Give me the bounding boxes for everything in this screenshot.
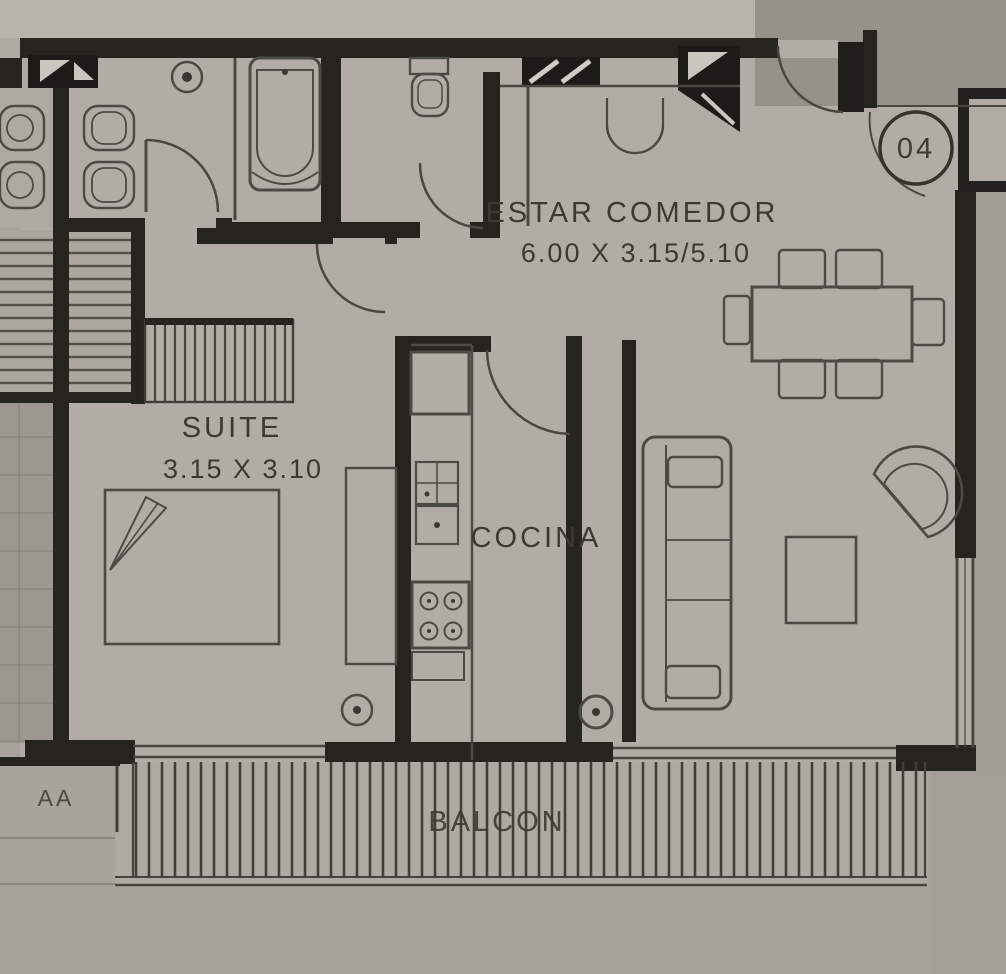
neighbor-wall-stub — [0, 58, 22, 88]
label-section-aa: AA — [38, 785, 75, 811]
bathtub-room-right-wall — [321, 56, 341, 234]
suite-top-wall — [197, 228, 333, 244]
label-estar-comedor: ESTAR COMEDOR — [485, 197, 778, 229]
stair-landing-wall — [0, 392, 145, 403]
photo-shadow — [930, 770, 1006, 974]
section-wall-stub — [0, 757, 120, 766]
entry-right-jamb — [863, 30, 877, 108]
exterior-right-strip — [976, 106, 1006, 770]
stair-treads-right — [69, 230, 131, 395]
unit-number-text: 04 — [897, 133, 935, 165]
suite-left-wall — [53, 228, 69, 763]
stair-treads-left — [0, 230, 53, 395]
label-balcon: BALCON — [428, 806, 565, 838]
duct-wall — [622, 340, 636, 742]
hall-closet-symbol — [522, 57, 600, 86]
label-suite: SUITE — [182, 412, 282, 444]
suite-door-jamb — [385, 228, 397, 244]
closet-icon — [145, 318, 293, 402]
bathroom-party-wall — [53, 78, 69, 232]
label-cocina: COCINA — [471, 522, 602, 554]
top-exterior-wall — [20, 38, 778, 58]
floor-plan-canvas: 04 ESTAR COMEDOR 6.00 X 3.15/5.10 SUITE … — [0, 0, 1006, 974]
entry-door-leaf — [838, 42, 864, 112]
dims-suite: 3.15 X 3.10 — [163, 454, 323, 484]
neighbor-window-frame — [958, 88, 1006, 192]
elevator-shaft-grid — [0, 403, 53, 743]
stair-right-wall — [131, 228, 145, 404]
kitchen-left-wall — [395, 336, 411, 762]
living-right-wall — [955, 190, 976, 558]
dims-estar-comedor: 6.00 X 3.15/5.10 — [521, 238, 751, 268]
entry-threshold — [778, 40, 838, 58]
top-margin — [0, 0, 755, 38]
kitchen-bottom-wall — [325, 742, 613, 762]
top-left-shaft-symbol — [28, 55, 98, 88]
floor-plan-photo: 04 ESTAR COMEDOR 6.00 X 3.15/5.10 SUITE … — [0, 0, 1006, 974]
